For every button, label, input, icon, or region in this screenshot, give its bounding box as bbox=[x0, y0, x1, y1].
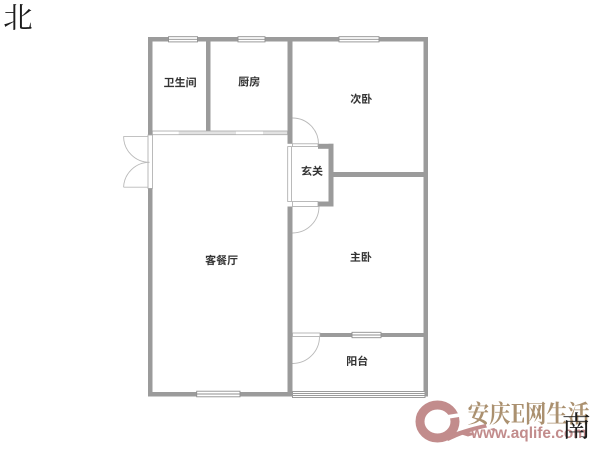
svg-text:www.aqlife.com: www.aqlife.com bbox=[470, 425, 587, 442]
